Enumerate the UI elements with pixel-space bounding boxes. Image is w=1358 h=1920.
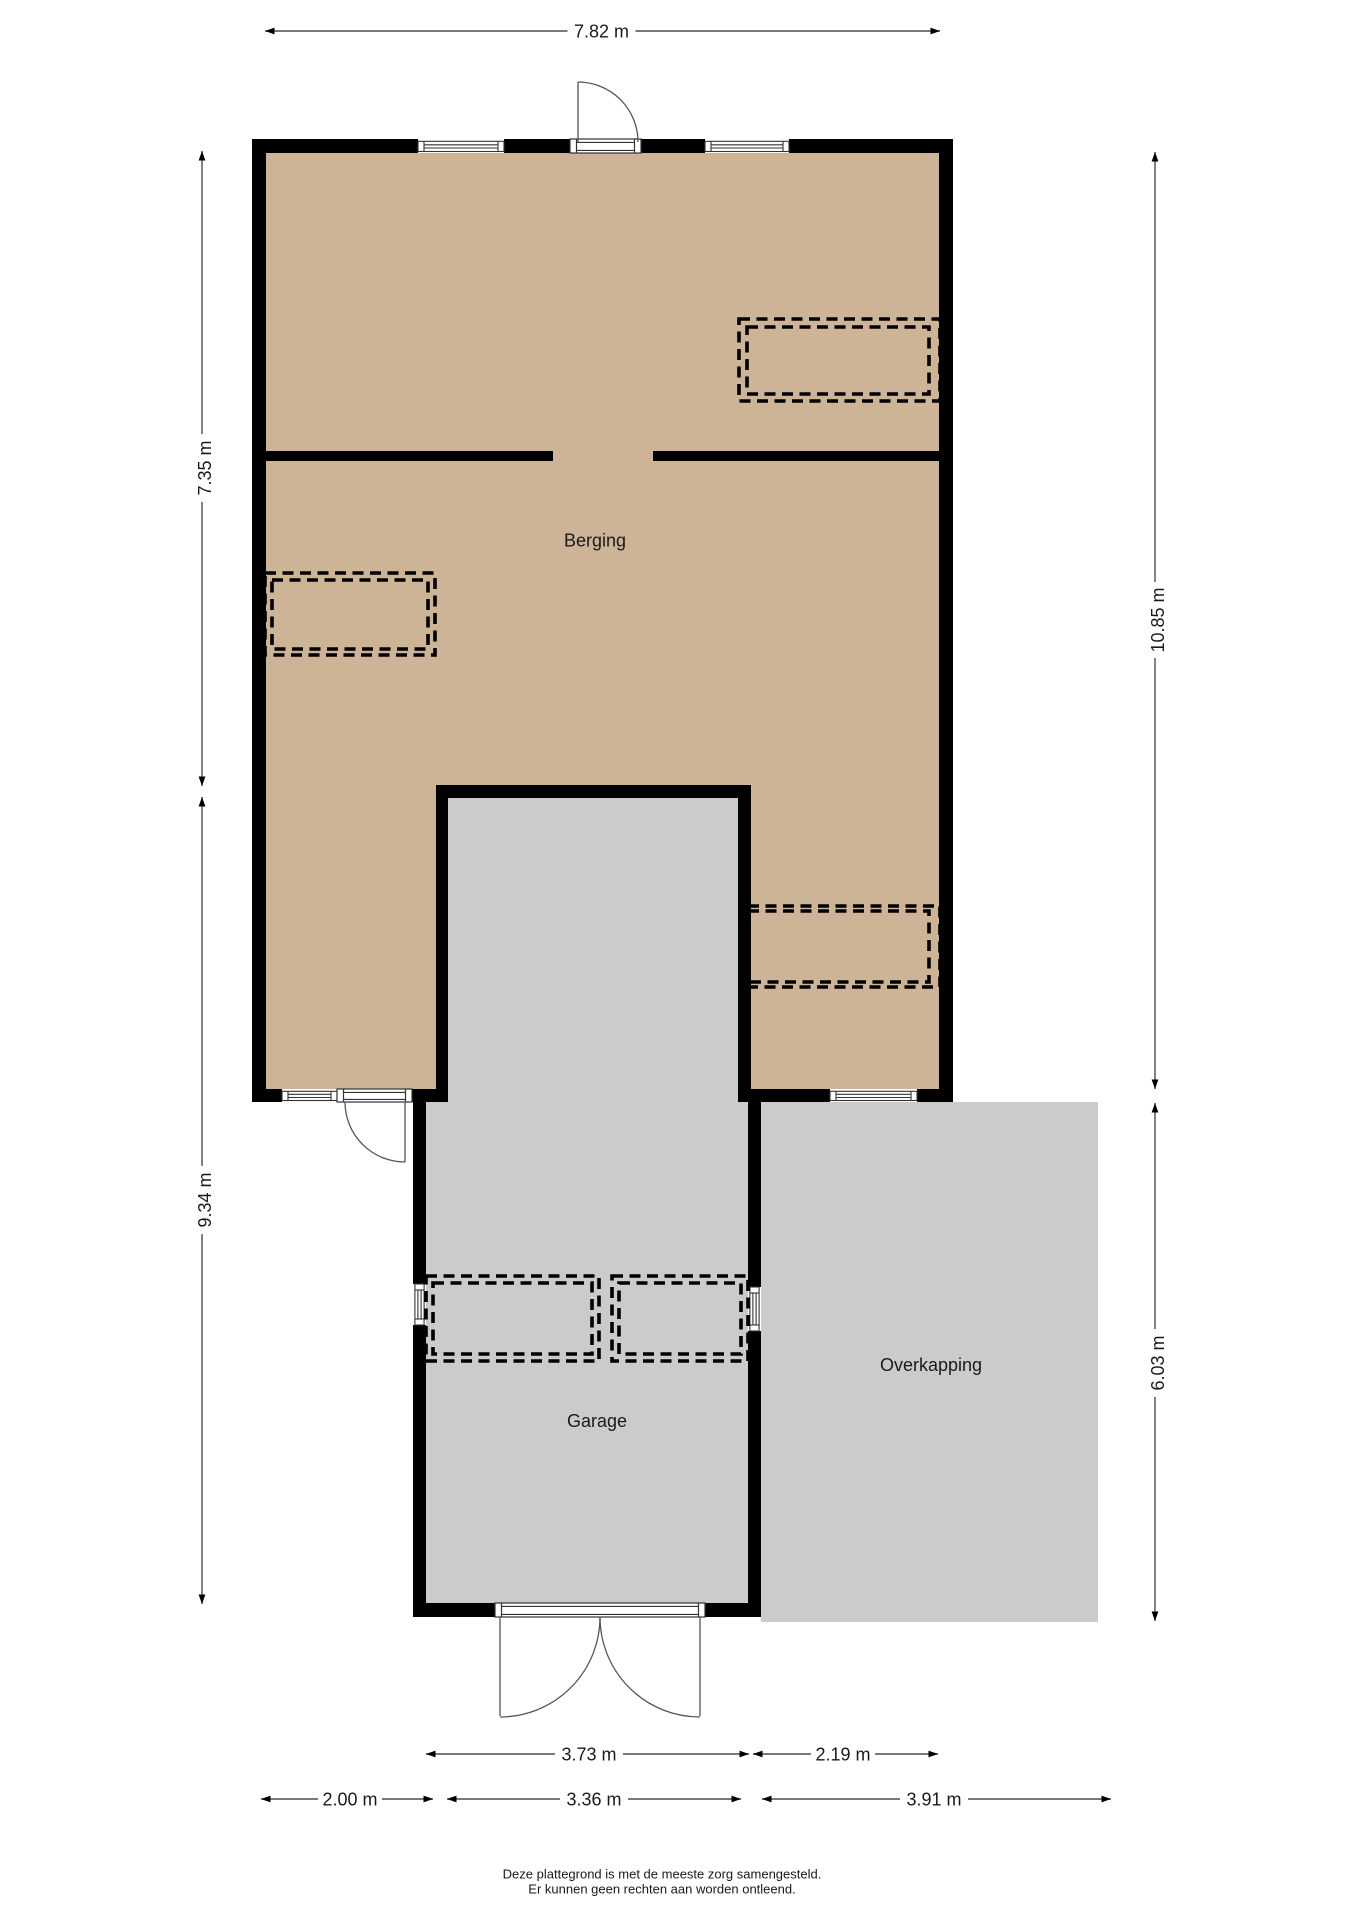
svg-text:6.03 m: 6.03 m bbox=[1148, 1335, 1168, 1390]
svg-text:Berging: Berging bbox=[564, 531, 626, 551]
svg-text:7.82 m: 7.82 m bbox=[574, 22, 629, 42]
svg-text:2.19 m: 2.19 m bbox=[815, 1745, 870, 1765]
svg-text:9.34 m: 9.34 m bbox=[195, 1172, 215, 1227]
svg-text:Er kunnen geen rechten aan wor: Er kunnen geen rechten aan worden ontlee… bbox=[528, 1882, 795, 1897]
svg-text:3.73 m: 3.73 m bbox=[561, 1745, 616, 1765]
svg-text:7.35 m: 7.35 m bbox=[195, 440, 215, 495]
svg-text:3.36 m: 3.36 m bbox=[566, 1790, 621, 1810]
svg-text:Deze plattegrond is met de mee: Deze plattegrond is met de meeste zorg s… bbox=[503, 1867, 822, 1882]
svg-text:Garage: Garage bbox=[567, 1411, 627, 1431]
svg-text:3.91 m: 3.91 m bbox=[906, 1790, 961, 1810]
svg-text:2.00 m: 2.00 m bbox=[322, 1790, 377, 1810]
svg-text:Overkapping: Overkapping bbox=[880, 1355, 982, 1375]
svg-text:10.85 m: 10.85 m bbox=[1148, 587, 1168, 652]
